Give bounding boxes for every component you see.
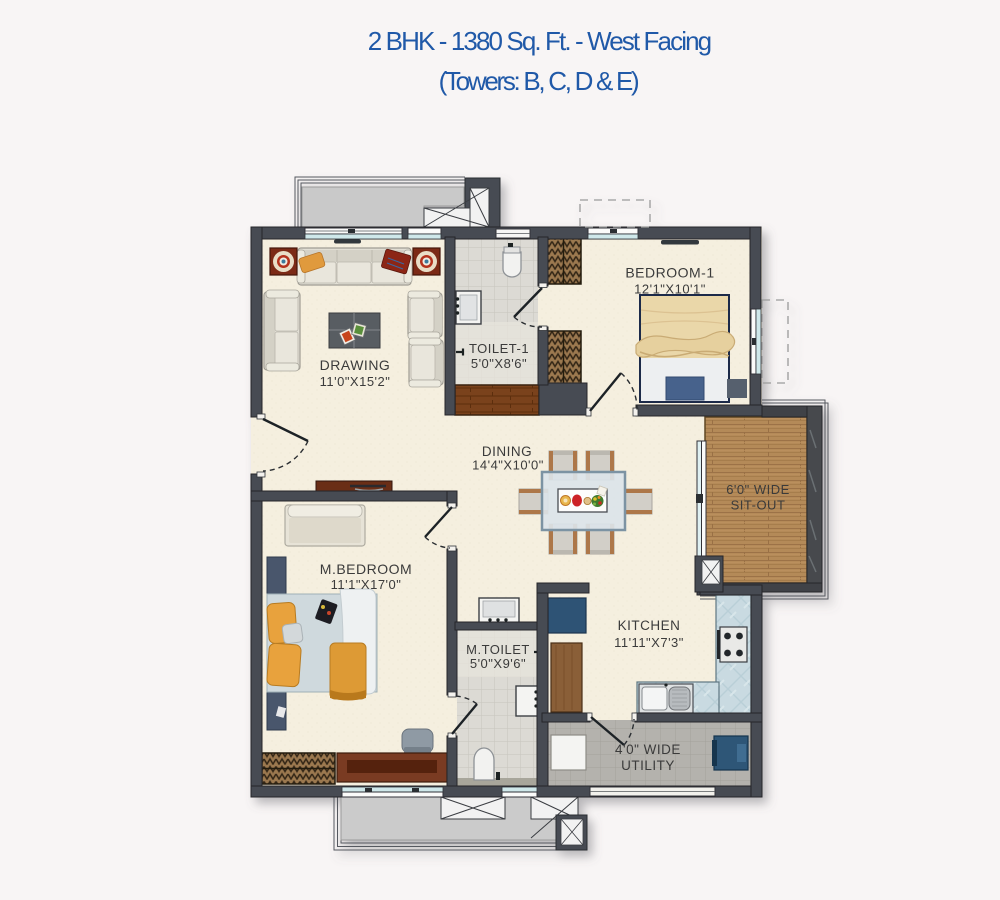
svg-text:M.TOILET: M.TOILET: [466, 642, 530, 657]
svg-text:11'1"X17'0": 11'1"X17'0": [331, 577, 402, 592]
svg-text:4'0" WIDE: 4'0" WIDE: [615, 742, 681, 757]
svg-text:11'0"X15'2": 11'0"X15'2": [320, 374, 391, 389]
svg-text:6'0" WIDE: 6'0" WIDE: [726, 482, 790, 497]
svg-text:5'0"X9'6": 5'0"X9'6": [470, 656, 526, 671]
svg-text:DRAWING: DRAWING: [320, 357, 391, 373]
svg-text:5'0"X8'6": 5'0"X8'6": [471, 356, 527, 371]
svg-text:BEDROOM-1: BEDROOM-1: [625, 265, 714, 281]
svg-text:12'1"X10'1": 12'1"X10'1": [634, 282, 706, 297]
svg-text:2 BHK - 1380 Sq. Ft. - West Fa: 2 BHK - 1380 Sq. Ft. - West Facing: [368, 26, 711, 56]
svg-text:(Towers: B, C, D & E): (Towers: B, C, D & E): [439, 66, 639, 96]
svg-text:UTILITY: UTILITY: [621, 758, 675, 773]
svg-text:M.BEDROOM: M.BEDROOM: [320, 561, 412, 577]
svg-text:SIT-OUT: SIT-OUT: [731, 498, 786, 513]
svg-text:TOILET-1: TOILET-1: [469, 341, 529, 356]
svg-text:11'11"X7'3": 11'11"X7'3": [614, 635, 684, 650]
svg-text:KITCHEN: KITCHEN: [618, 618, 681, 633]
svg-text:14'4"X10'0": 14'4"X10'0": [472, 458, 544, 473]
